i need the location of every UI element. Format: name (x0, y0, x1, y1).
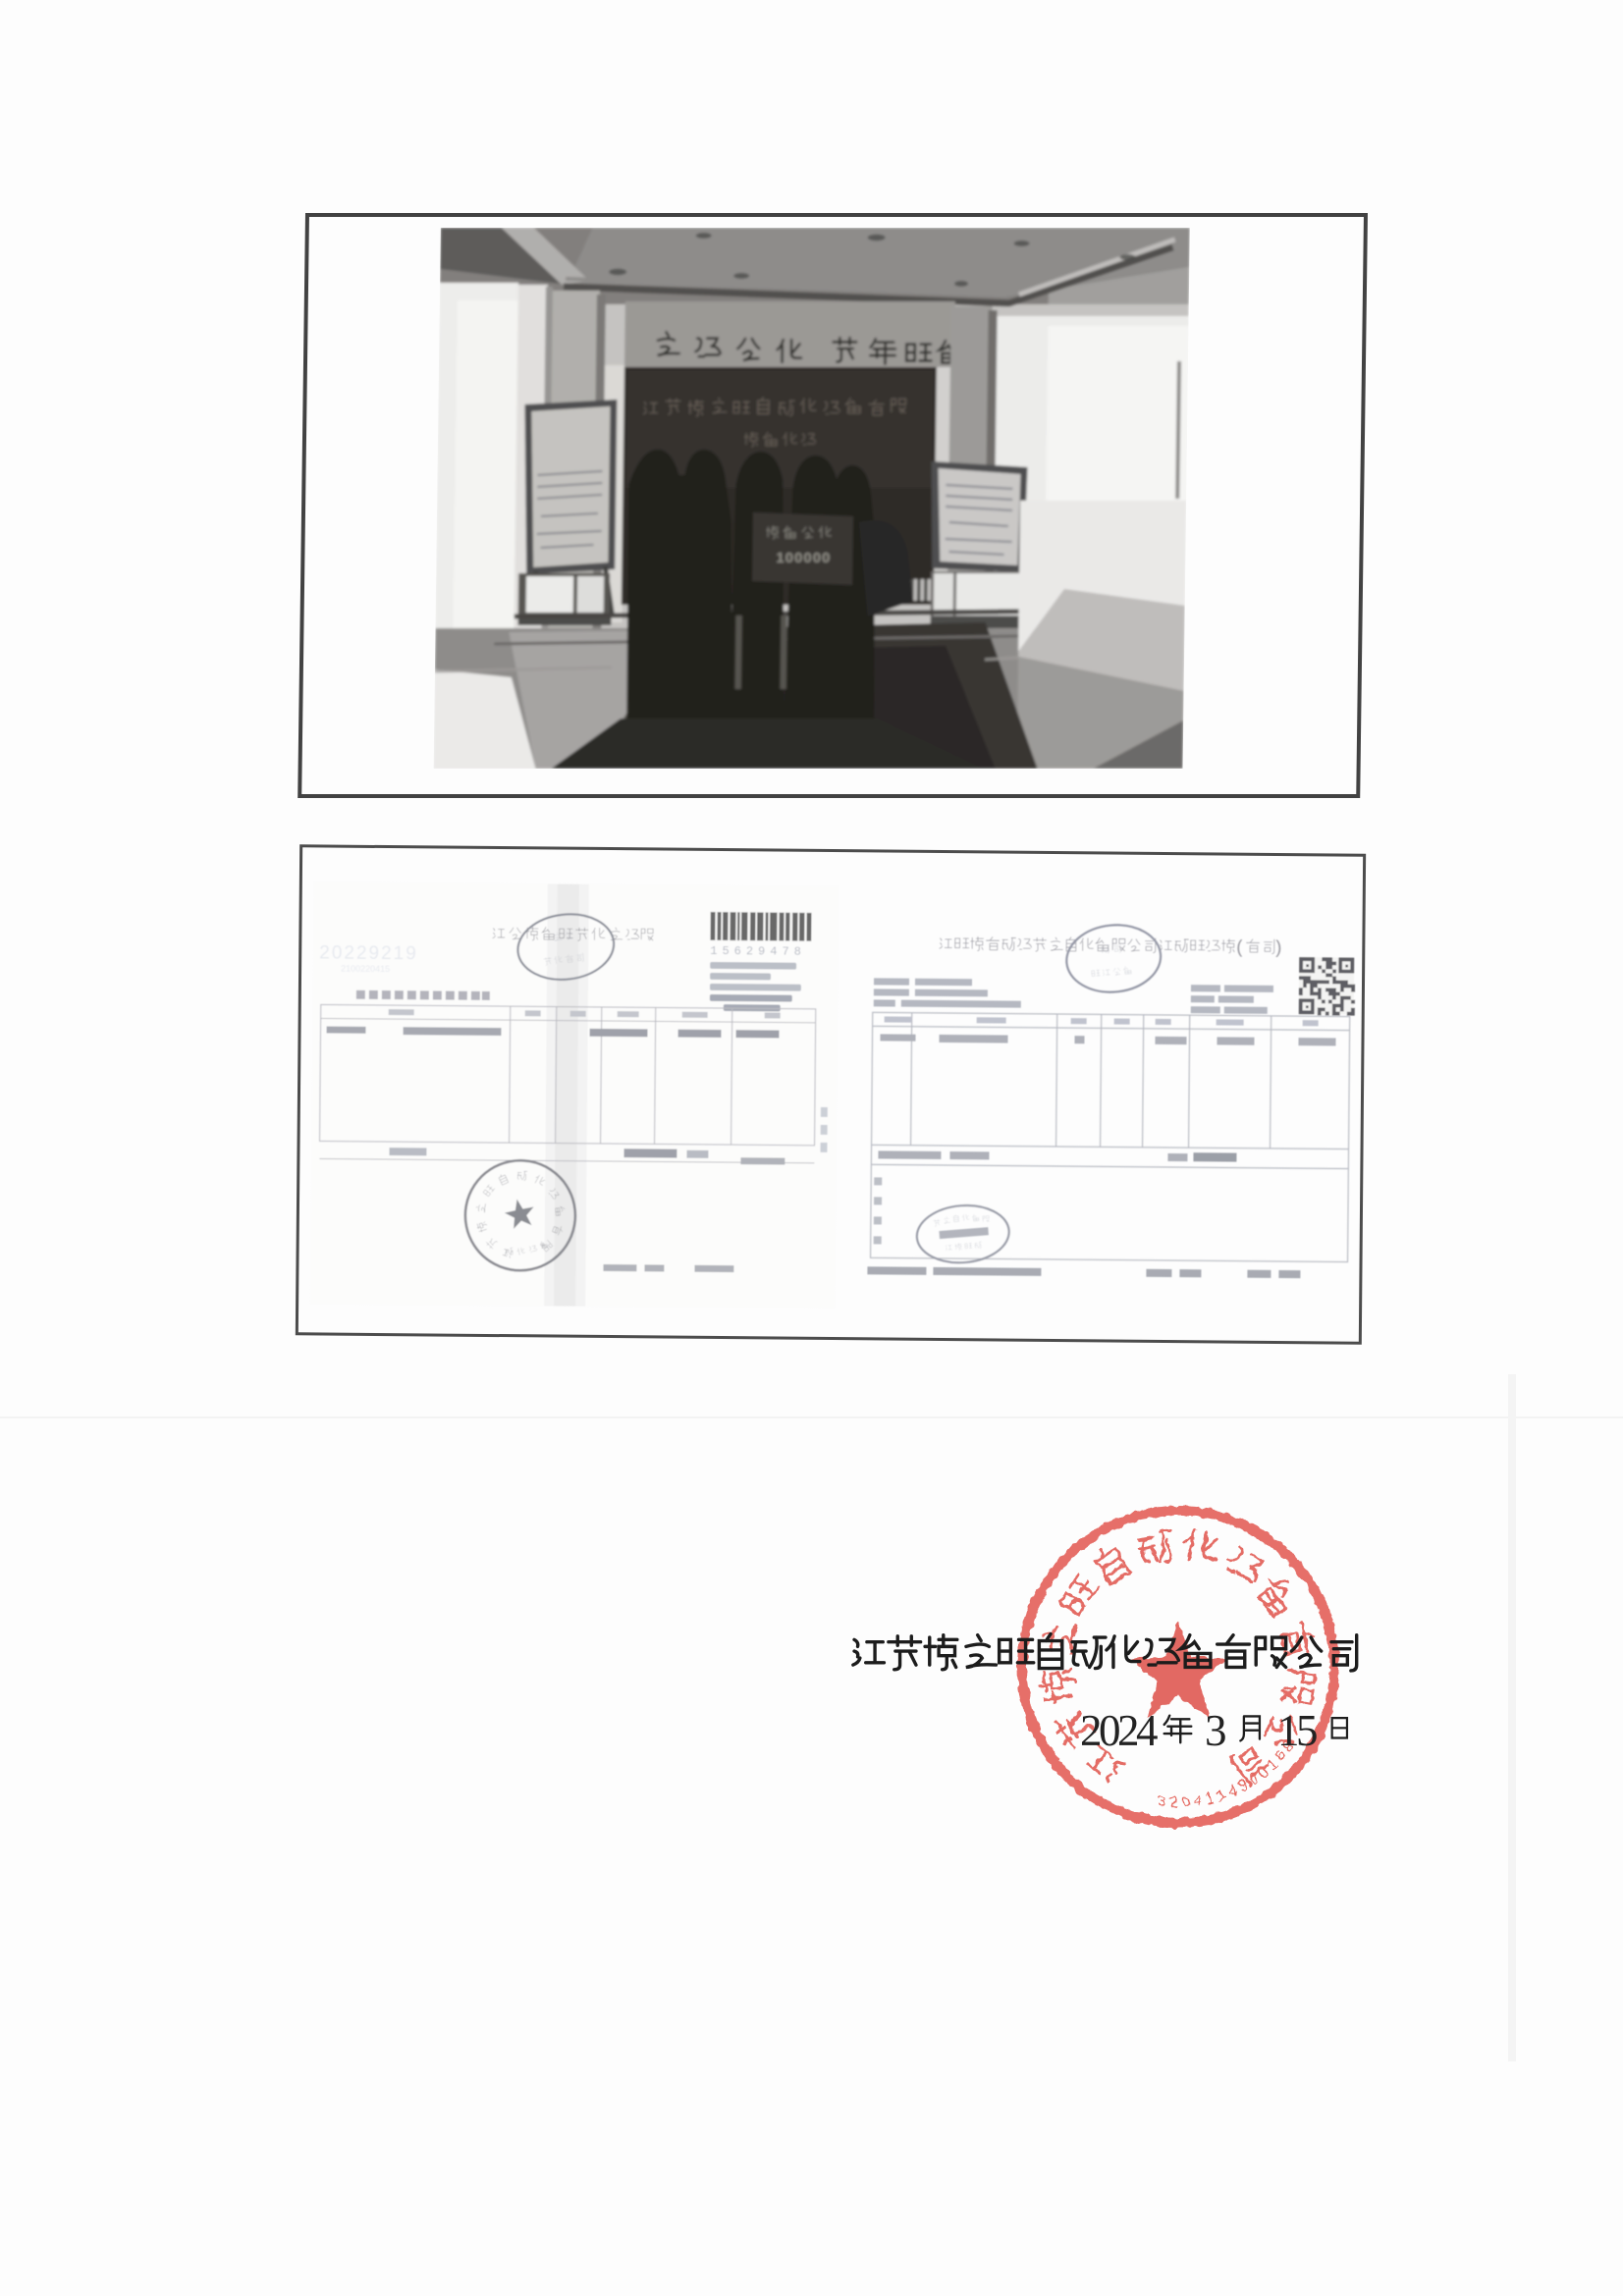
svg-text:2100220415: 2100220415 (341, 964, 390, 974)
svg-text:1: 1 (1204, 1789, 1217, 1808)
svg-text:4: 4 (1192, 1792, 1203, 1810)
svg-text:): ) (1275, 937, 1281, 957)
svg-text:20229219: 20229219 (319, 942, 418, 964)
svg-text:(: ( (1236, 937, 1242, 957)
svg-text:2: 2 (1169, 1794, 1179, 1811)
svg-text:0: 0 (1181, 1794, 1191, 1811)
svg-text:15: 15 (1277, 1708, 1317, 1755)
svg-text:15629478: 15629478 (710, 944, 806, 959)
svg-text:3: 3 (1205, 1708, 1227, 1755)
svg-text:3: 3 (1157, 1792, 1167, 1810)
svg-text:2024: 2024 (1080, 1708, 1158, 1755)
